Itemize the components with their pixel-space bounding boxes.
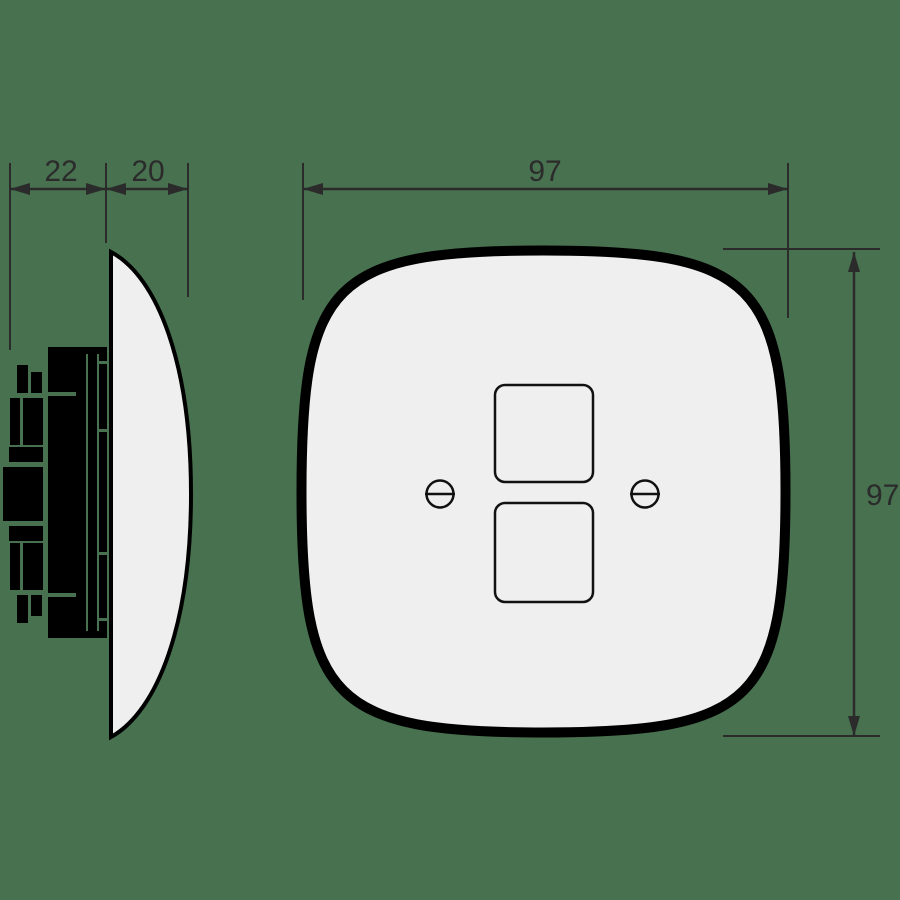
mechanism-slit bbox=[48, 593, 76, 597]
side-view-mechanism-silhouette bbox=[3, 347, 107, 638]
technical-drawing-canvas: 22 20 bbox=[0, 0, 900, 900]
mechanism-lug bbox=[31, 372, 42, 393]
mechanism-slit bbox=[99, 361, 107, 364]
arrowhead-middle-left-icon bbox=[106, 183, 126, 195]
mechanism-slit bbox=[99, 429, 107, 432]
arrowhead-up-icon bbox=[848, 252, 860, 272]
dimension-label-plate-width: 97 bbox=[528, 155, 561, 188]
front-view-plate bbox=[302, 251, 786, 733]
mechanism-lug bbox=[10, 398, 20, 445]
arrowhead-left-icon bbox=[10, 183, 30, 195]
mechanism-lug bbox=[23, 398, 43, 445]
side-view: 22 20 bbox=[3, 155, 191, 737]
mechanism-lug bbox=[17, 365, 28, 393]
dimension-label-plate-depth: 20 bbox=[131, 155, 164, 188]
dimension-label-plate-height: 97 bbox=[866, 479, 899, 512]
mechanism-lug bbox=[31, 595, 42, 616]
arrowhead-left-icon bbox=[303, 183, 323, 195]
dimension-label-mechanism-depth: 22 bbox=[44, 155, 77, 188]
mechanism-slit bbox=[99, 552, 107, 555]
arrowhead-right-icon bbox=[168, 183, 188, 195]
arrowhead-down-icon bbox=[848, 716, 860, 736]
mechanism-lug bbox=[17, 595, 28, 623]
mechanism-outer-strip bbox=[99, 347, 107, 638]
front-view: 97 97 bbox=[302, 155, 900, 736]
arrowhead-middle-right-icon bbox=[86, 183, 106, 195]
mechanism-lug bbox=[10, 543, 20, 590]
side-view-plate-profile bbox=[111, 252, 191, 737]
mechanism-lug bbox=[23, 543, 43, 590]
mechanism-slit bbox=[48, 392, 76, 396]
mechanism-slit bbox=[99, 618, 107, 621]
mechanism-center-block bbox=[3, 467, 43, 521]
mechanism-lug bbox=[9, 526, 43, 541]
mechanism-bottom-cap bbox=[48, 631, 107, 638]
dimension-drawing: 22 20 bbox=[0, 0, 900, 900]
arrowhead-right-icon bbox=[768, 183, 788, 195]
mechanism-lug bbox=[9, 447, 43, 462]
mechanism-inner-strip bbox=[88, 353, 97, 632]
mechanism-top-cap bbox=[48, 347, 107, 354]
